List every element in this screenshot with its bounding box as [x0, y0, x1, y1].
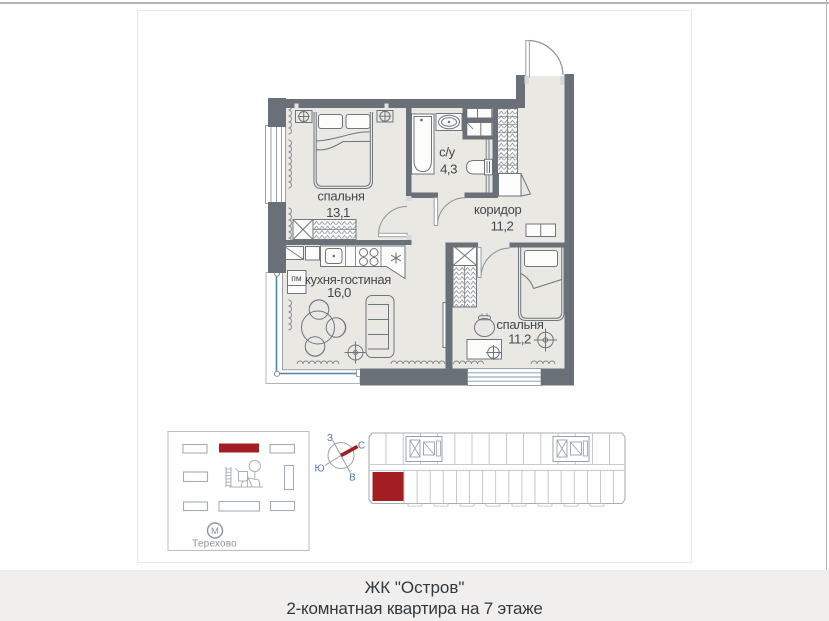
svg-text:Ю: Ю: [314, 464, 324, 475]
svg-text:с/у: с/у: [439, 145, 456, 160]
svg-text:В: В: [349, 473, 356, 484]
svg-text:11,2: 11,2: [491, 219, 514, 234]
svg-text:4,3: 4,3: [440, 162, 457, 177]
svg-text:Терехово: Терехово: [192, 539, 237, 550]
svg-text:13,1: 13,1: [326, 205, 350, 220]
svg-text:коридор: коридор: [474, 202, 522, 217]
svg-text:11,2: 11,2: [508, 332, 531, 347]
svg-text:пм: пм: [291, 273, 302, 283]
svg-text:спальня: спальня: [317, 189, 365, 204]
svg-text:16,0: 16,0: [327, 285, 351, 300]
svg-text:спальня: спальня: [496, 317, 544, 332]
svg-text:М: М: [211, 526, 219, 537]
svg-text:З: З: [327, 433, 333, 444]
svg-text:С: С: [358, 441, 365, 452]
